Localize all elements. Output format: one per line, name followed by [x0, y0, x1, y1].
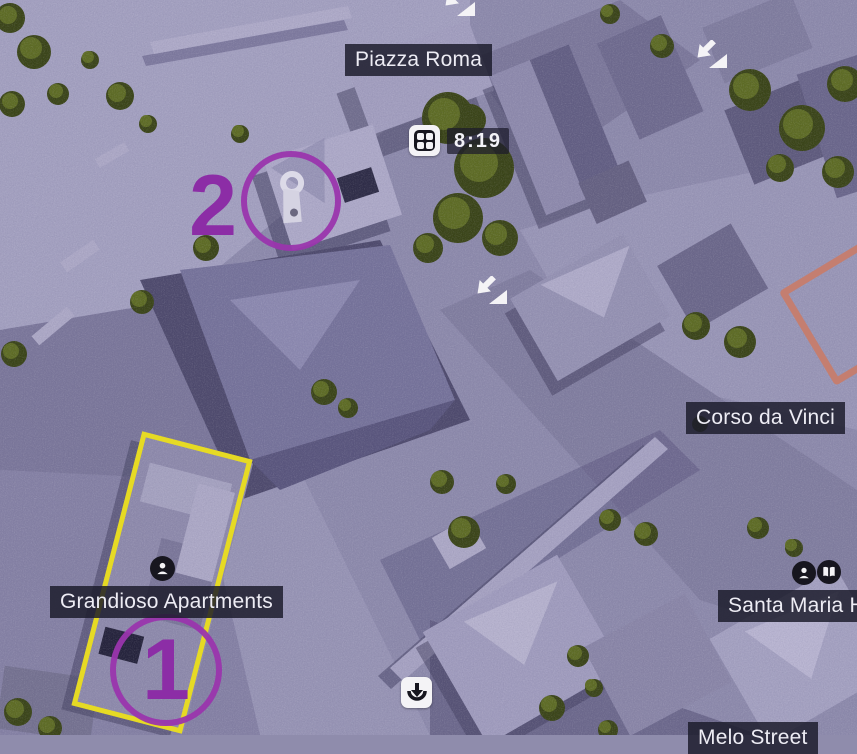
person-icon-grandioso[interactable]: [150, 556, 175, 581]
label-grandioso-apartments: Grandioso Apartments: [50, 586, 283, 618]
label-santa-maria: Santa Maria Ho: [718, 590, 857, 622]
entry-arrow-icon-right[interactable]: [694, 40, 730, 70]
label-corso-da-vinci: Corso da Vinci: [686, 402, 845, 434]
label-melo-street: Melo Street: [688, 722, 818, 754]
van-grid-glyph: [414, 130, 435, 151]
entry-arrow-icon-top[interactable]: [442, 0, 478, 18]
label-piazza-roma: Piazza Roma: [345, 44, 492, 76]
intel-book-icon[interactable]: [817, 560, 841, 584]
deploy-glyph: [406, 682, 428, 704]
character-pin-icon[interactable]: [268, 168, 314, 234]
van-grid-icon[interactable]: [409, 125, 440, 156]
deploy-point-icon[interactable]: [401, 677, 432, 708]
entry-arrow-icon-center[interactable]: [474, 276, 510, 306]
objective-1-number: 1: [110, 618, 222, 722]
person-icon-santa-maria[interactable]: [792, 561, 816, 585]
timer-value: 8:19: [447, 128, 509, 154]
objective-2-number: 2: [183, 160, 243, 252]
